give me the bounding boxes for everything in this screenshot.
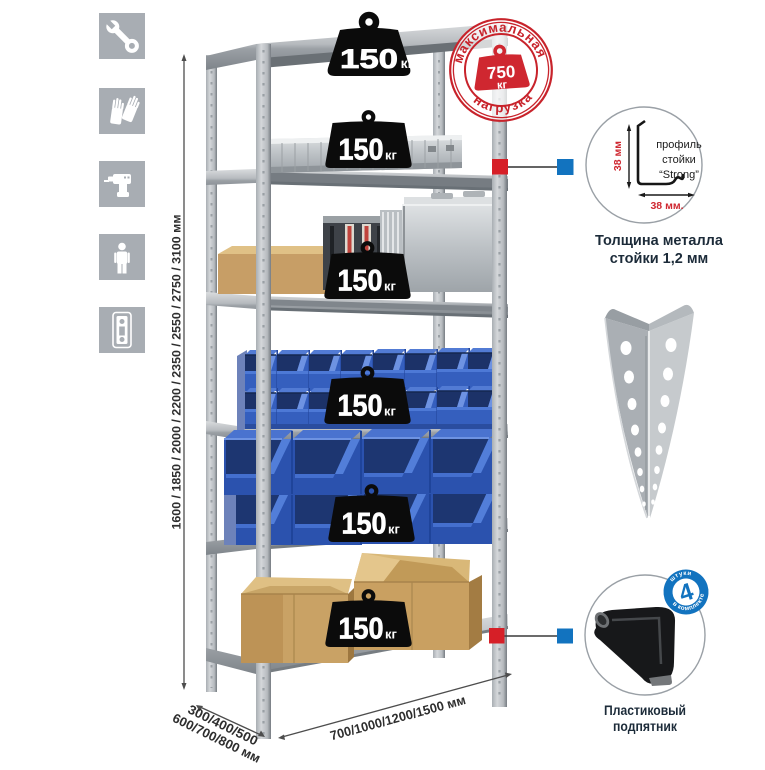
svg-text:кг: кг [497, 79, 508, 92]
svg-text:700/1000/1200/1500 мм: 700/1000/1200/1500 мм [328, 692, 467, 743]
svg-text:“Strong”: “Strong” [659, 169, 699, 181]
svg-text:Толщина металла: Толщина металла [595, 233, 724, 249]
svg-text:38 мм: 38 мм [612, 141, 624, 171]
svg-text:стойки: стойки [662, 154, 696, 166]
svg-text:подпятник: подпятник [613, 718, 678, 734]
svg-text:Пластиковый: Пластиковый [604, 702, 686, 718]
svg-text:1600 / 1850 / 2000 / 2200 / 23: 1600 / 1850 / 2000 / 2200 / 2350 / 2550 … [170, 214, 184, 529]
svg-text:38 мм.: 38 мм. [650, 200, 683, 212]
svg-text:стойки 1,2 мм: стойки 1,2 мм [610, 251, 709, 267]
svg-text:профиль: профиль [656, 139, 702, 151]
